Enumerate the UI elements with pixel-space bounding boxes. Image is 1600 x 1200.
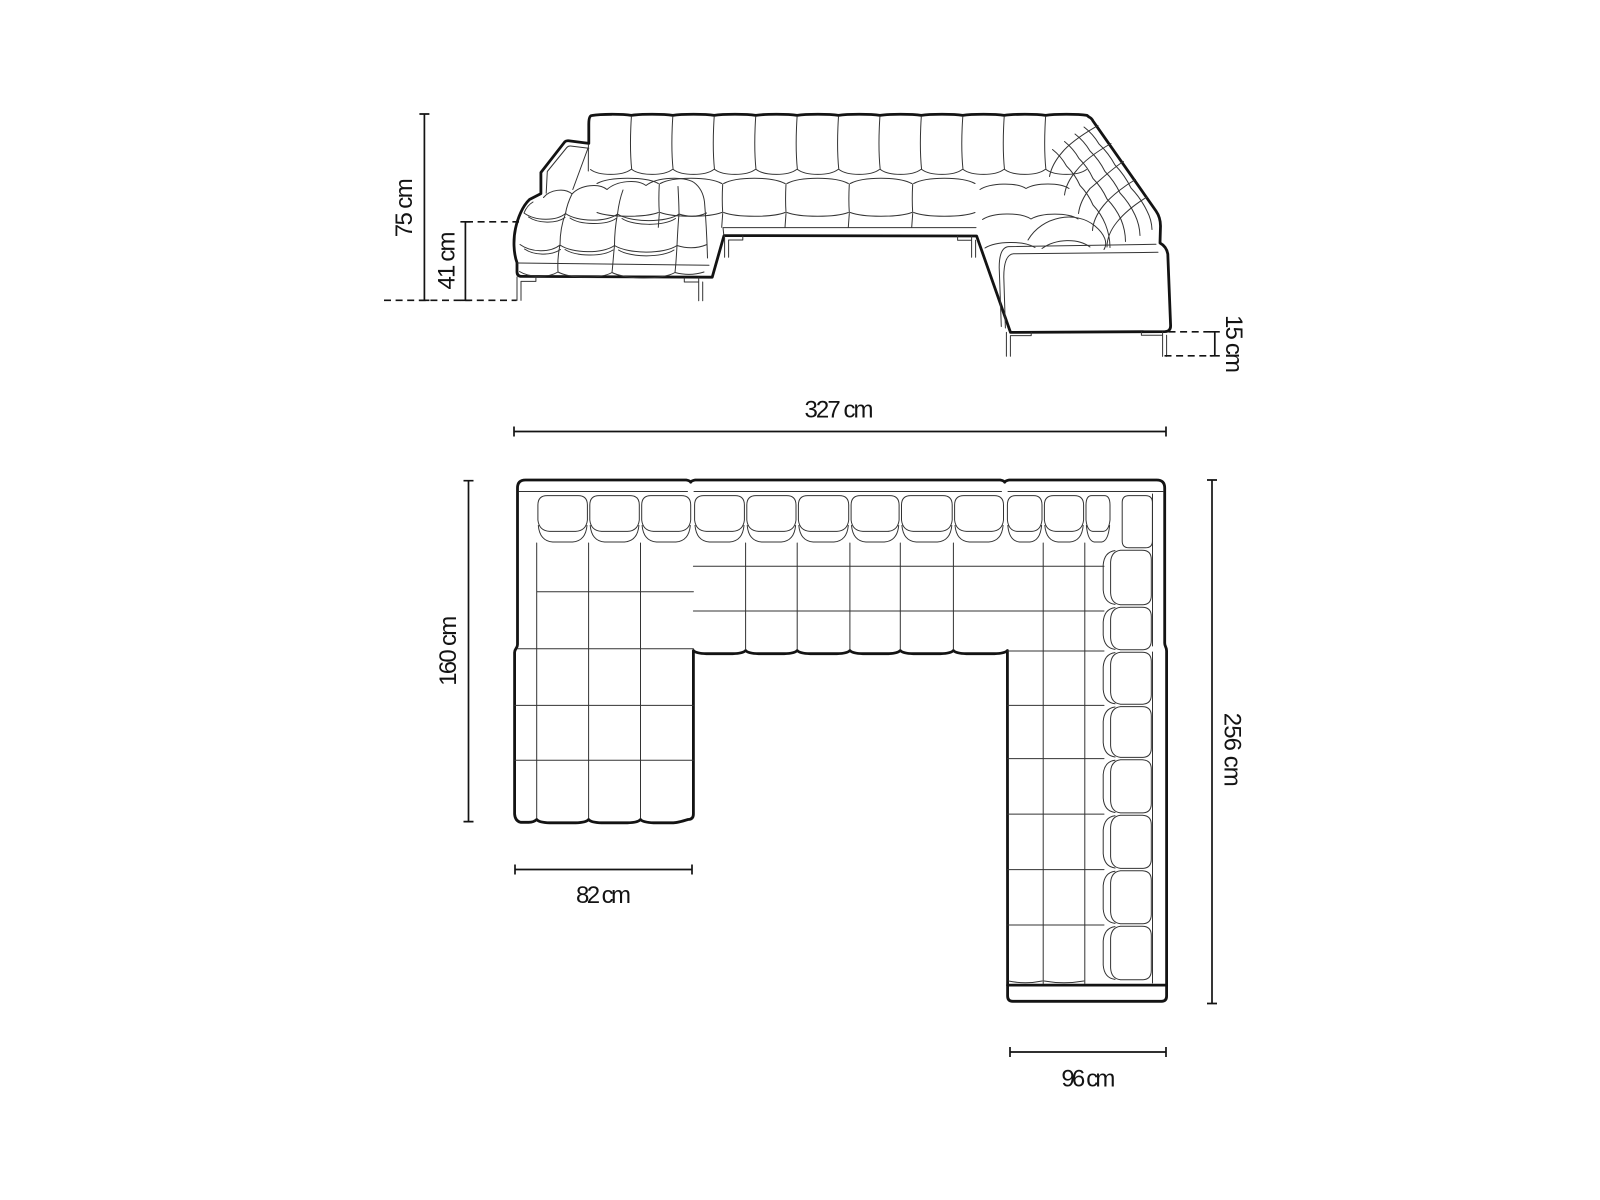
svg-text:160 cm: 160 cm [435,616,462,686]
svg-text:96 cm: 96 cm [1061,1066,1115,1093]
svg-text:82 cm: 82 cm [576,882,631,909]
svg-text:41 cm: 41 cm [433,232,460,290]
svg-text:256 cm: 256 cm [1218,713,1245,787]
svg-text:327 cm: 327 cm [805,397,874,424]
svg-text:15 cm: 15 cm [1220,315,1247,373]
svg-text:75 cm: 75 cm [391,178,418,237]
